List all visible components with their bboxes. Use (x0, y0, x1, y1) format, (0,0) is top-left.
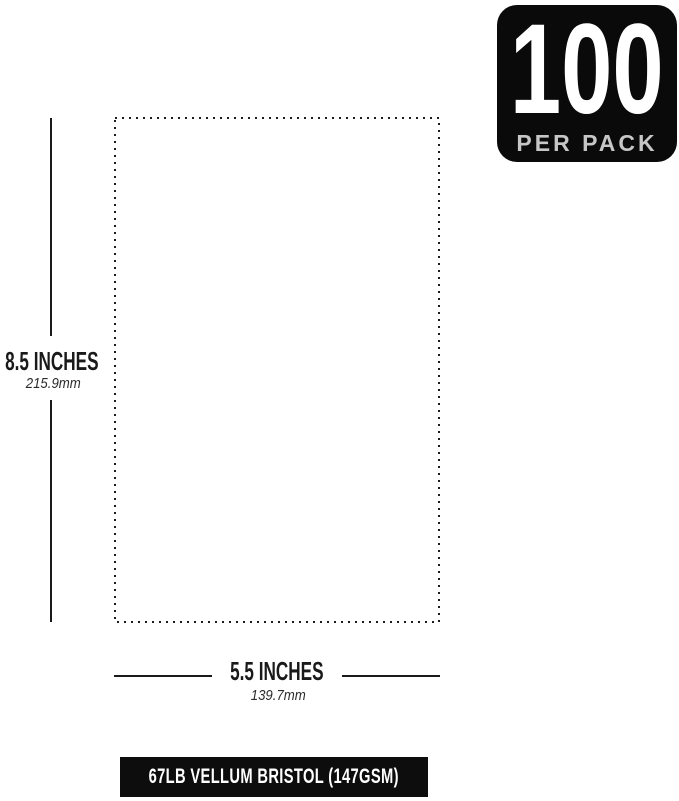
height-dimension-line-bottom (50, 400, 52, 622)
count-badge: 100 PER PACK (497, 5, 677, 162)
paper-spec-bar: 67LB VELLUM BRISTOL (147GSM) (120, 757, 428, 797)
height-label-mm: 215.9mm (0, 376, 153, 392)
height-label-mm-text: 215.9mm (25, 376, 80, 392)
width-label-mm: 139.7mm (178, 688, 378, 704)
paper-outline (114, 117, 440, 623)
width-label-inches: 5.5 INCHES (177, 658, 377, 684)
badge-count: 100 (510, 12, 664, 127)
height-label-inches: 8.5 INCHES (0, 348, 152, 374)
width-label-inches-text: 5.5 INCHES (230, 658, 323, 684)
width-label-mm-text: 139.7mm (250, 688, 305, 704)
product-dimension-diagram: 100 PER PACK 8.5 INCHES 215.9mm 5.5 INCH… (0, 0, 679, 801)
paper-spec-text: 67LB VELLUM BRISTOL (147GSM) (149, 765, 399, 789)
height-label-inches-text: 8.5 INCHES (5, 348, 98, 374)
height-dimension-line-top (50, 118, 52, 336)
